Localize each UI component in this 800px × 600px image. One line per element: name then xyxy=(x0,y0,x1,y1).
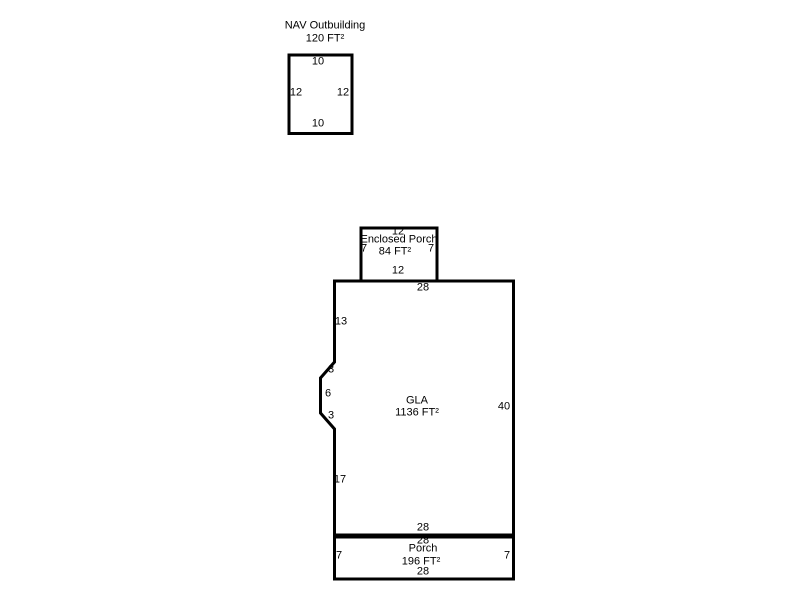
outbuilding-dim-top: 10 xyxy=(312,57,324,68)
enclosed-porch-area: 84 FT² xyxy=(379,247,411,258)
porch-dim-left: 7 xyxy=(336,551,342,562)
gla-dim-bay-left: 6 xyxy=(325,389,331,400)
gla-label: GLA xyxy=(406,396,428,407)
outbuilding-area: 120 FT² xyxy=(306,34,345,45)
enclosed-porch-dim-bottom: 12 xyxy=(392,266,404,277)
outbuilding-dim-left: 12 xyxy=(290,88,302,99)
outbuilding-dim-right: 12 xyxy=(337,88,349,99)
floorplan-sketch: NAV Outbuilding 120 FT² 10 12 12 10 12 E… xyxy=(0,0,800,600)
porch-label: Porch xyxy=(409,544,438,555)
porch-dim-bottom: 28 xyxy=(417,567,429,578)
gla-dim-left-lower: 17 xyxy=(334,475,346,486)
gla-dim-bay-upper: 3 xyxy=(328,365,334,376)
porch-dim-right: 7 xyxy=(504,551,510,562)
outbuilding-dim-bottom: 10 xyxy=(312,119,324,130)
gla-dim-bay-lower: 3 xyxy=(328,411,334,422)
gla-dim-left-upper: 13 xyxy=(335,317,347,328)
gla-dim-bottom: 28 xyxy=(417,523,429,534)
enclosed-porch-dim-left: 7 xyxy=(361,244,367,255)
sketch-shapes xyxy=(0,0,800,600)
gla-area: 1136 FT² xyxy=(395,408,439,419)
outbuilding-title: NAV Outbuilding xyxy=(285,21,366,32)
enclosed-porch-label: Enclosed Porch xyxy=(360,235,437,246)
gla-dim-right: 40 xyxy=(498,402,510,413)
enclosed-porch-dim-right: 7 xyxy=(428,244,434,255)
gla-dim-top: 28 xyxy=(417,283,429,294)
